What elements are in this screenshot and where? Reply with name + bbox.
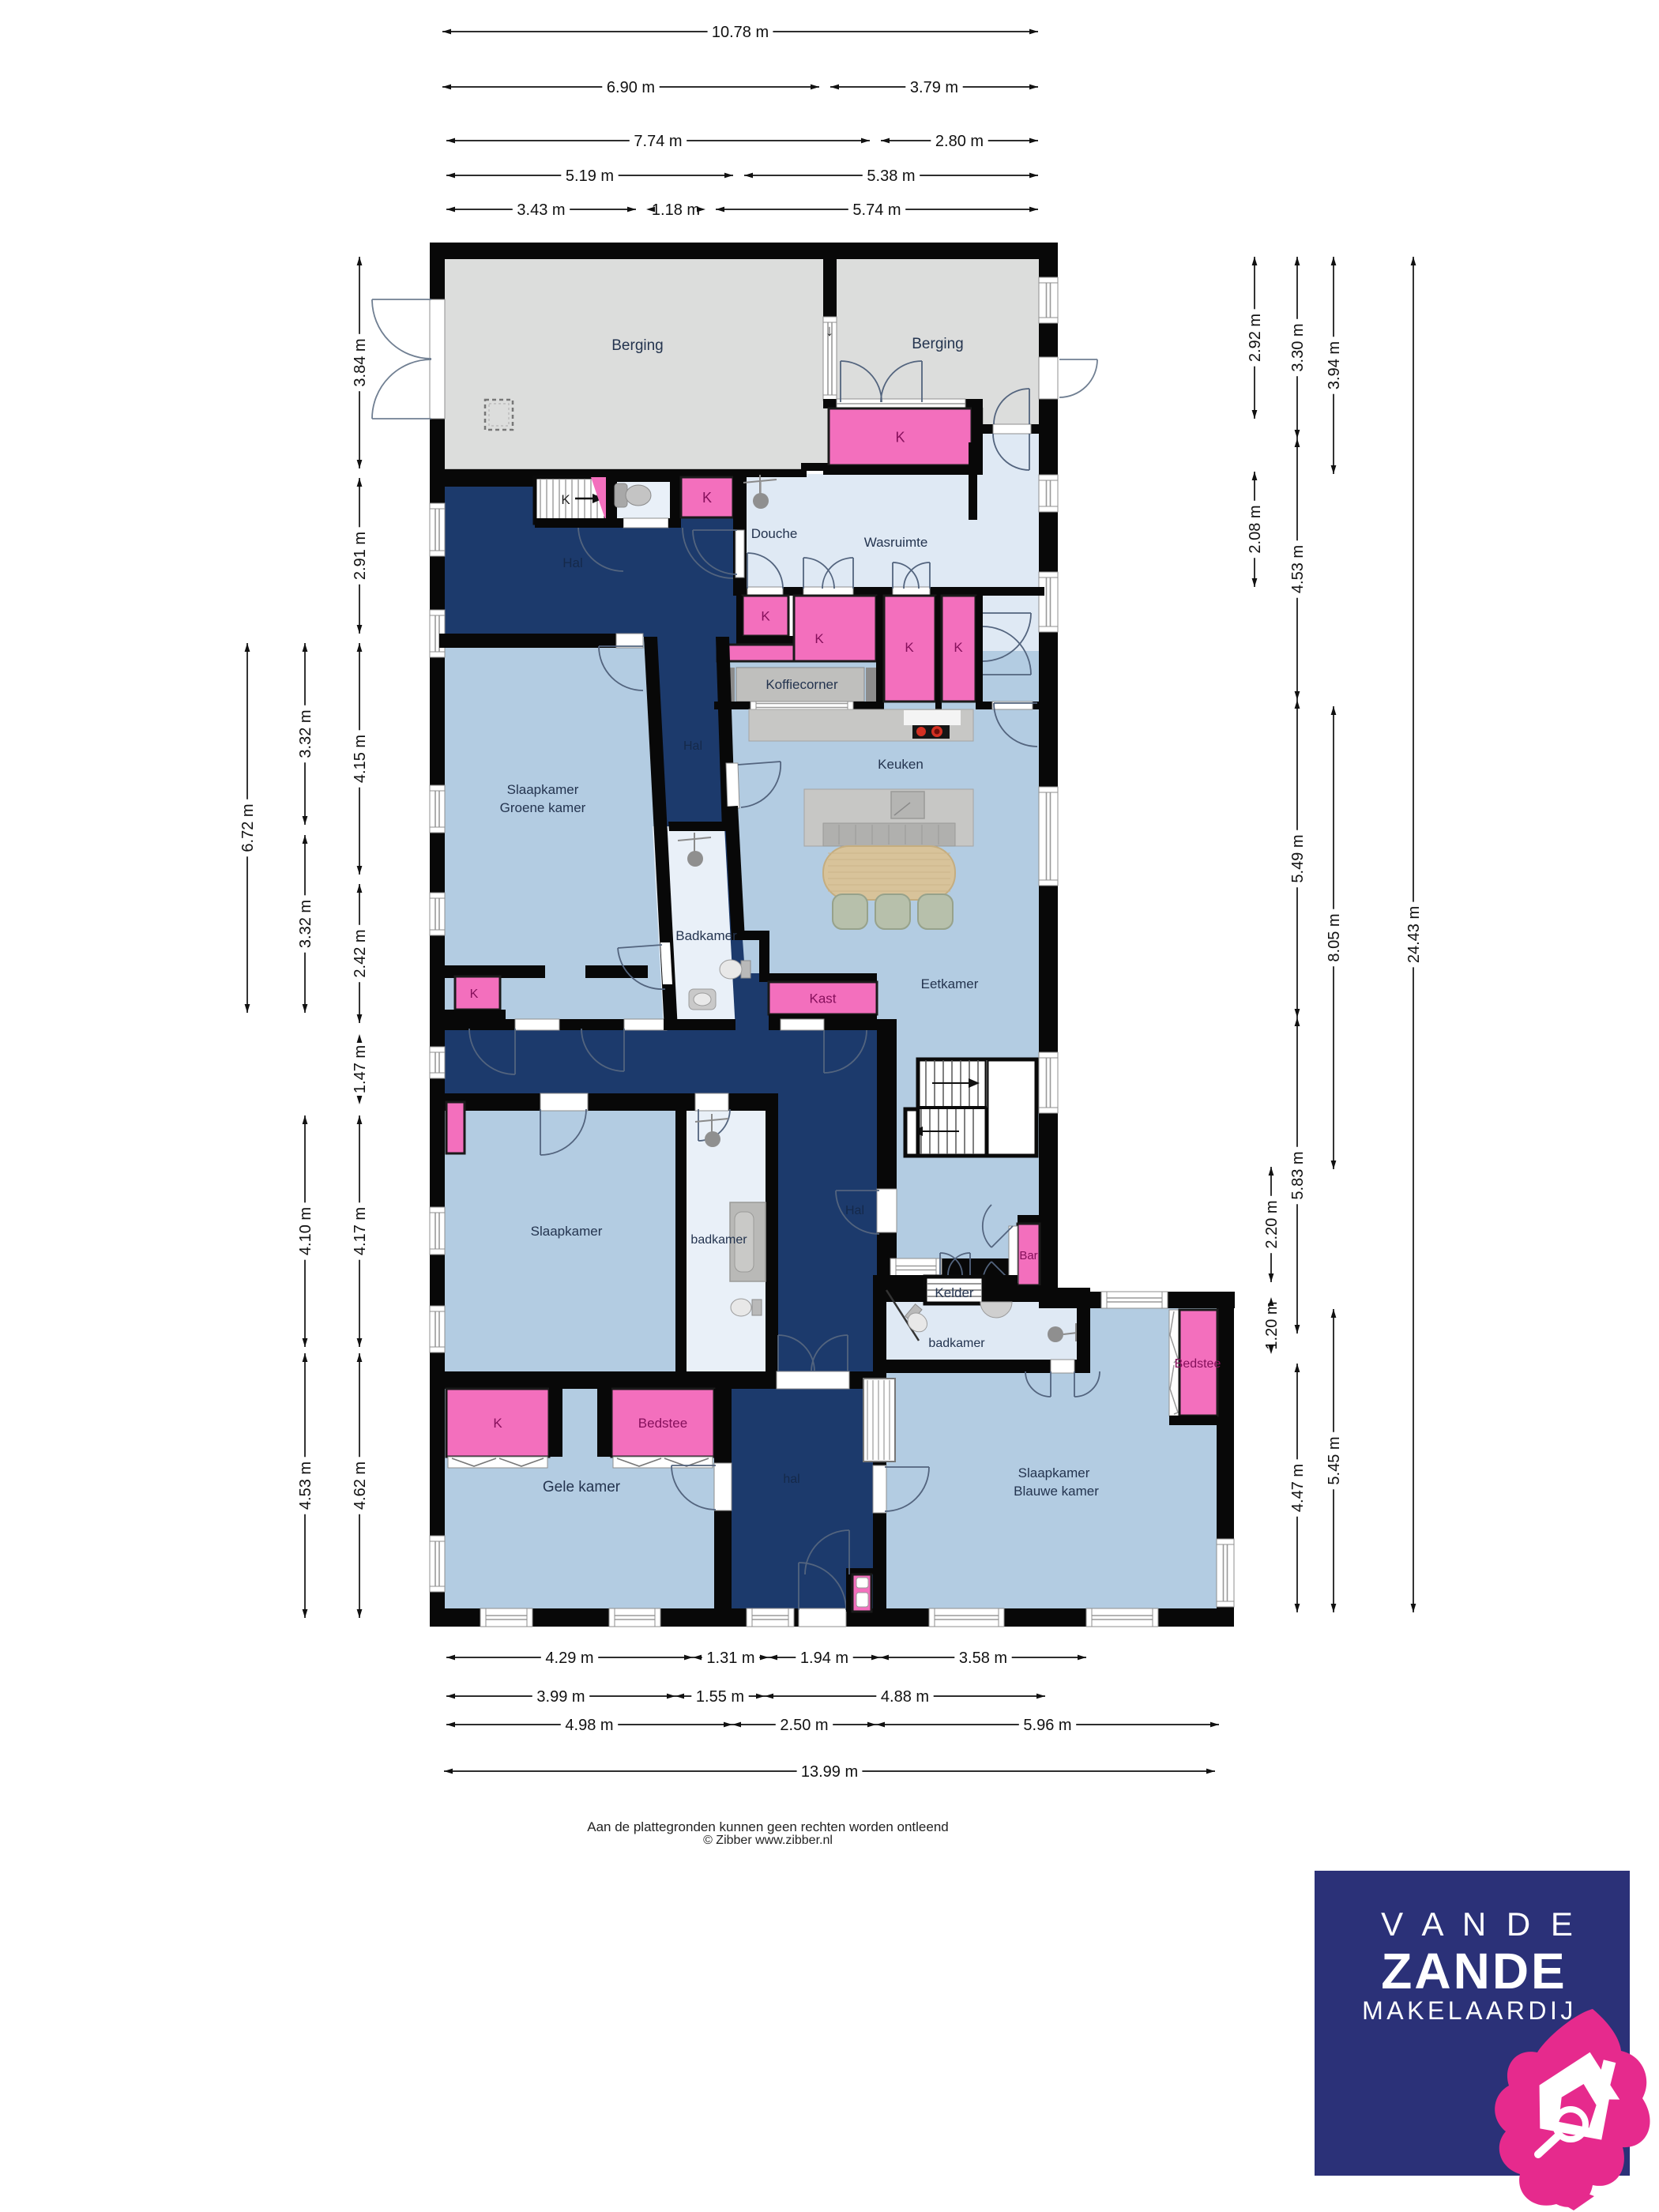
svg-text:3.84 m: 3.84 m xyxy=(352,338,369,386)
svg-text:24.43 m: 24.43 m xyxy=(1405,906,1423,963)
svg-text:3.32 m: 3.32 m xyxy=(297,900,314,948)
svg-text:Berging: Berging xyxy=(912,336,964,352)
svg-text:Bedstee: Bedstee xyxy=(1175,1357,1221,1371)
svg-text:4.62 m: 4.62 m xyxy=(352,1461,369,1510)
svg-text:4.53 m: 4.53 m xyxy=(1289,545,1307,593)
svg-text:Kelder: Kelder xyxy=(935,1285,973,1300)
svg-text:2.42 m: 2.42 m xyxy=(352,929,369,977)
svg-text:7.74 m: 7.74 m xyxy=(634,133,682,150)
svg-text:4.98 m: 4.98 m xyxy=(565,1717,613,1734)
svg-text:MAKELAARDIJ: MAKELAARDIJ xyxy=(1362,1996,1577,2025)
svg-text:Keuken: Keuken xyxy=(878,757,924,772)
svg-text:4.17 m: 4.17 m xyxy=(352,1207,369,1255)
svg-text:5.96 m: 5.96 m xyxy=(1023,1717,1071,1734)
svg-text:Hal: Hal xyxy=(562,555,583,570)
svg-text:6.72 m: 6.72 m xyxy=(239,803,257,852)
svg-text:1.55 m: 1.55 m xyxy=(696,1688,744,1706)
svg-text:Douche: Douche xyxy=(751,526,798,541)
svg-text:13.99 m: 13.99 m xyxy=(801,1763,858,1781)
svg-text:1.31 m: 1.31 m xyxy=(706,1650,754,1667)
svg-text:K: K xyxy=(561,492,570,507)
svg-text:3.30 m: 3.30 m xyxy=(1289,323,1307,371)
svg-text:K: K xyxy=(470,987,479,1001)
svg-text:badkamer: badkamer xyxy=(690,1233,747,1247)
svg-text:5.83 m: 5.83 m xyxy=(1289,1151,1307,1199)
svg-text:10.78 m: 10.78 m xyxy=(712,24,769,41)
svg-text:Berging: Berging xyxy=(611,337,664,354)
svg-text:ZANDE: ZANDE xyxy=(1381,1943,1567,1999)
svg-text:Bedstee: Bedstee xyxy=(638,1416,687,1431)
svg-text:Badkamer: Badkamer xyxy=(675,928,737,943)
svg-text:2.80 m: 2.80 m xyxy=(935,133,984,150)
svg-text:K: K xyxy=(814,631,824,646)
svg-text:1.20 m: 1.20 m xyxy=(1263,1301,1281,1349)
svg-text:8.05 m: 8.05 m xyxy=(1326,913,1343,961)
svg-text:Bar: Bar xyxy=(1019,1249,1037,1262)
svg-text:4.47 m: 4.47 m xyxy=(1289,1464,1307,1512)
svg-text:Koffiecorner: Koffiecorner xyxy=(766,677,838,692)
svg-text:4.53 m: 4.53 m xyxy=(297,1461,314,1510)
svg-text:5.74 m: 5.74 m xyxy=(852,201,901,219)
svg-text:Gele kamer: Gele kamer xyxy=(543,1479,621,1495)
svg-text:1.94 m: 1.94 m xyxy=(800,1650,848,1667)
svg-text:K: K xyxy=(895,429,905,445)
svg-text:2.08 m: 2.08 m xyxy=(1247,505,1264,553)
svg-text:↓: ↓ xyxy=(826,322,833,340)
svg-text:1.18 m: 1.18 m xyxy=(652,201,700,219)
svg-text:K: K xyxy=(702,490,712,506)
svg-text:4.29 m: 4.29 m xyxy=(545,1650,593,1667)
svg-text:K: K xyxy=(761,609,770,624)
svg-text:Slaapkamer: Slaapkamer xyxy=(1018,1465,1090,1480)
svg-text:Groene kamer: Groene kamer xyxy=(500,800,586,815)
svg-text:Aan de plattegronden kunnen ge: Aan de plattegronden kunnen geen rechten… xyxy=(587,1819,948,1834)
svg-text:Slaapkamer: Slaapkamer xyxy=(507,782,579,797)
svg-text:K: K xyxy=(954,640,963,655)
svg-text:2.91 m: 2.91 m xyxy=(352,532,369,580)
svg-text:Blauwe kamer: Blauwe kamer xyxy=(1014,1484,1099,1499)
svg-text:© Zibber www.zibber.nl: © Zibber www.zibber.nl xyxy=(703,1834,833,1847)
svg-text:6.90 m: 6.90 m xyxy=(607,79,655,96)
svg-text:1.47 m: 1.47 m xyxy=(352,1045,369,1093)
svg-text:V A N D E: V A N D E xyxy=(1381,1905,1578,1943)
svg-text:5.45 m: 5.45 m xyxy=(1326,1436,1343,1484)
svg-text:badkamer: badkamer xyxy=(928,1337,985,1350)
svg-text:3.58 m: 3.58 m xyxy=(959,1650,1007,1667)
svg-text:3.99 m: 3.99 m xyxy=(536,1688,585,1706)
svg-text:5.49 m: 5.49 m xyxy=(1289,834,1307,882)
svg-text:Hal: Hal xyxy=(845,1204,864,1217)
svg-text:2.50 m: 2.50 m xyxy=(780,1717,828,1734)
svg-text:hal: hal xyxy=(783,1473,799,1486)
svg-text:3.32 m: 3.32 m xyxy=(297,709,314,758)
svg-text:5.19 m: 5.19 m xyxy=(566,167,614,185)
svg-text:3.79 m: 3.79 m xyxy=(910,79,958,96)
svg-text:Hal: Hal xyxy=(683,739,702,753)
svg-text:4.15 m: 4.15 m xyxy=(352,735,369,783)
svg-text:2.20 m: 2.20 m xyxy=(1263,1200,1281,1248)
svg-text:3.43 m: 3.43 m xyxy=(517,201,565,219)
svg-text:Kast: Kast xyxy=(809,991,836,1006)
svg-text:3.94 m: 3.94 m xyxy=(1326,341,1343,389)
svg-text:5.38 m: 5.38 m xyxy=(867,167,915,185)
svg-text:Wasruimte: Wasruimte xyxy=(864,535,928,550)
svg-text:Eetkamer: Eetkamer xyxy=(921,976,979,991)
svg-text:4.88 m: 4.88 m xyxy=(881,1688,929,1706)
svg-text:K: K xyxy=(905,640,914,655)
svg-text:2.92 m: 2.92 m xyxy=(1247,314,1264,362)
svg-text:4.10 m: 4.10 m xyxy=(297,1207,314,1255)
svg-text:K: K xyxy=(493,1416,502,1431)
svg-text:Slaapkamer: Slaapkamer xyxy=(531,1224,603,1239)
